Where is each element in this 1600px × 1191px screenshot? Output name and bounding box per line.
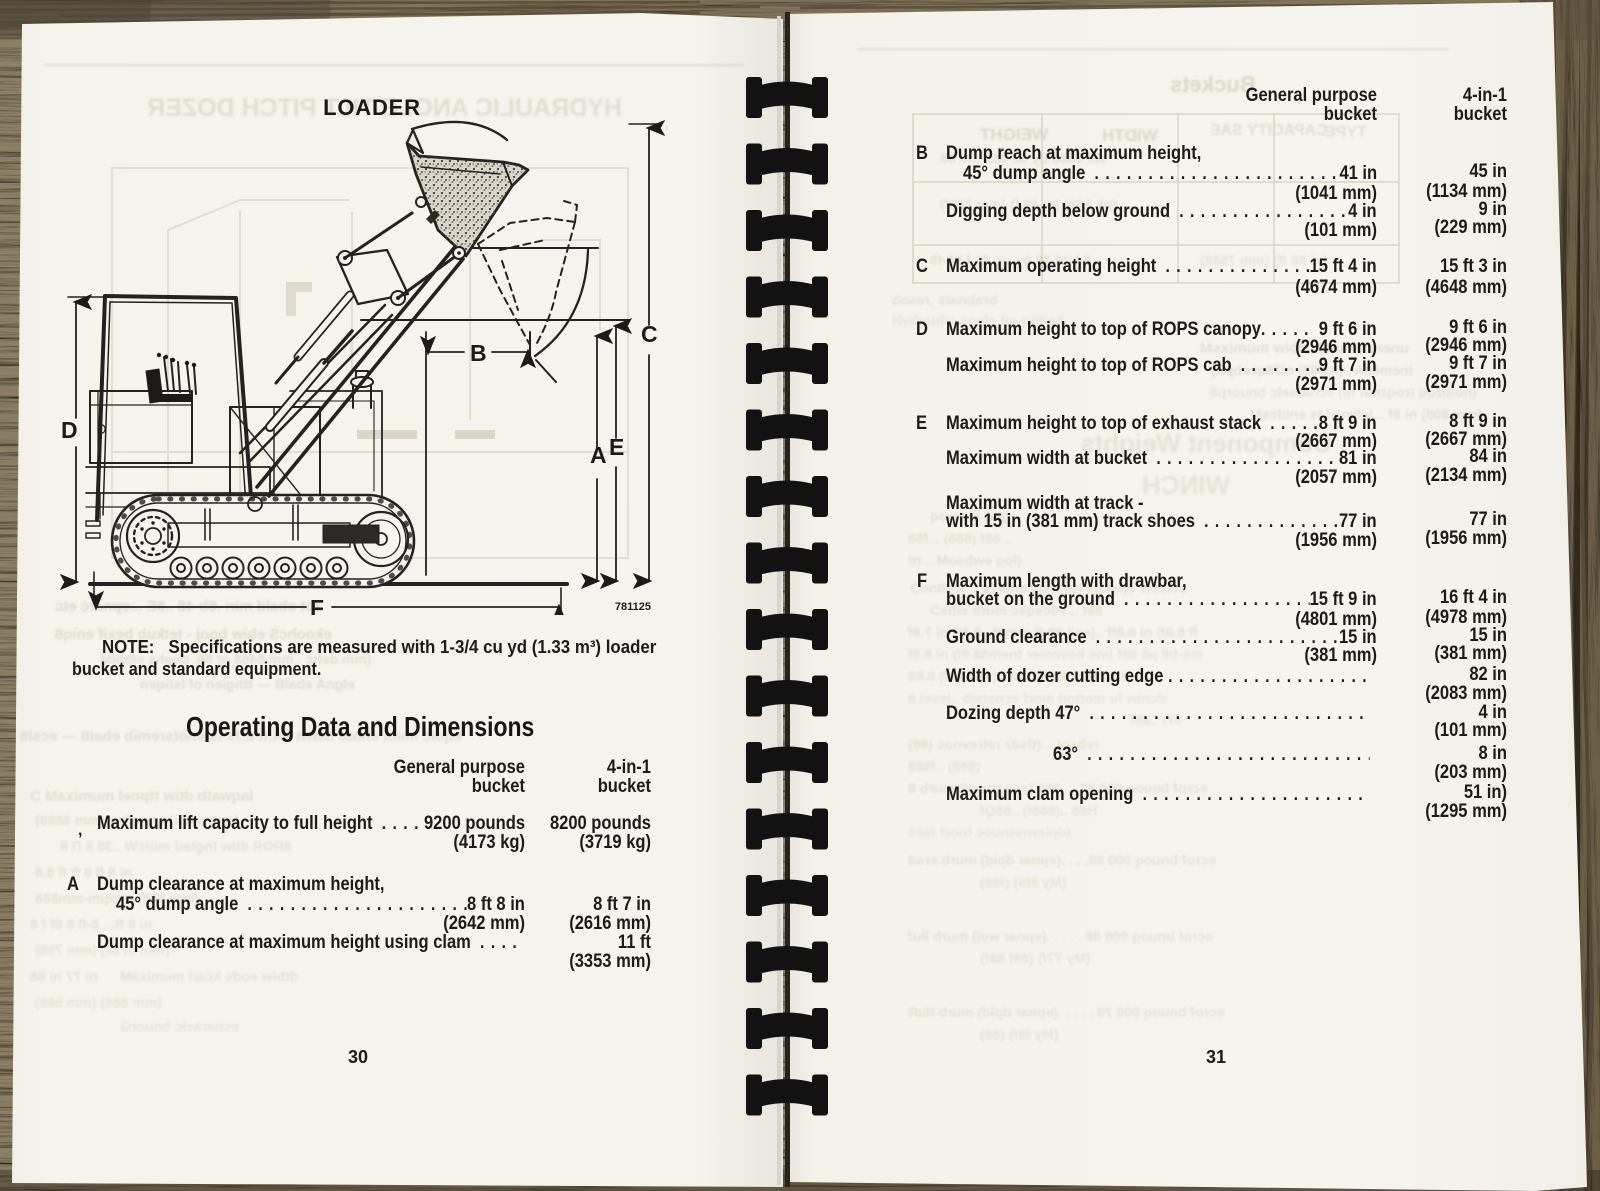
svg-text:A: A [590, 442, 607, 468]
svg-text:F: F [310, 595, 324, 615]
svg-text:B: B [470, 340, 487, 366]
svg-text:E: E [609, 434, 624, 460]
svg-text:D: D [61, 417, 78, 443]
svg-text:781125: 781125 [615, 601, 651, 613]
svg-text:C: C [641, 321, 658, 347]
